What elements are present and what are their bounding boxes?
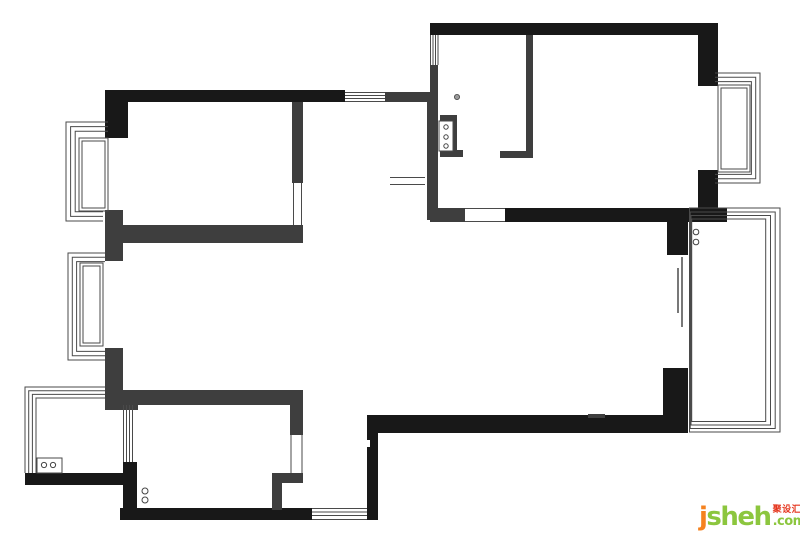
bay-window-frames <box>25 73 760 473</box>
window-symbols <box>124 35 506 520</box>
jsheh-watermark-logo: j sheh 聚设汇 .com <box>699 504 800 530</box>
logo-tld: .com <box>773 515 800 528</box>
interior-walls <box>105 35 605 510</box>
sliding-door-symbol <box>678 257 682 327</box>
floor-plan-drawing <box>0 0 800 541</box>
logo-text: sheh <box>706 504 770 530</box>
floorplan-page: j sheh 聚设汇 .com <box>0 0 800 541</box>
exterior-walls <box>25 23 727 520</box>
logo-initial: j <box>699 504 706 530</box>
